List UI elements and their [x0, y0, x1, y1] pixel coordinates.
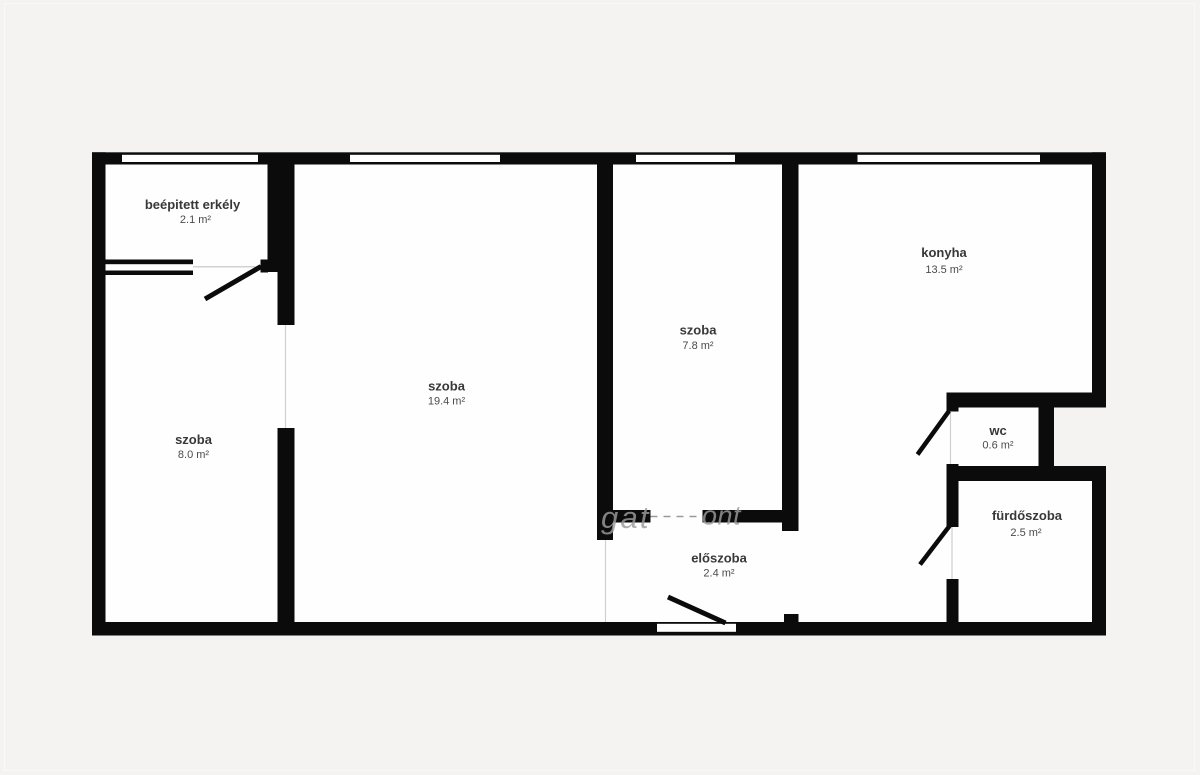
svg-text:szoba: szoba [175, 432, 213, 447]
svg-text:előszoba: előszoba [691, 551, 747, 566]
svg-text:2.5 m²: 2.5 m² [1010, 527, 1042, 539]
svg-text:19.4 m²: 19.4 m² [428, 396, 466, 408]
svg-text:beépitett erkély: beépitett erkély [145, 197, 241, 212]
svg-text:fürdőszoba: fürdőszoba [992, 508, 1063, 523]
svg-text:7.8 m²: 7.8 m² [682, 340, 714, 352]
svg-text:konyha: konyha [921, 245, 967, 260]
svg-text:2.4 m²: 2.4 m² [703, 568, 735, 580]
svg-text:gat: gat [601, 500, 651, 535]
svg-text:ont: ont [702, 501, 742, 531]
svg-text:szoba: szoba [680, 323, 718, 338]
svg-text:2.1 m²: 2.1 m² [180, 214, 212, 226]
svg-text:8.0 m²: 8.0 m² [178, 449, 210, 461]
svg-text:0.6 m²: 0.6 m² [982, 440, 1014, 452]
svg-text:wc: wc [988, 423, 1006, 438]
svg-text:13.5 m²: 13.5 m² [925, 264, 963, 276]
svg-text:szoba: szoba [428, 379, 466, 394]
